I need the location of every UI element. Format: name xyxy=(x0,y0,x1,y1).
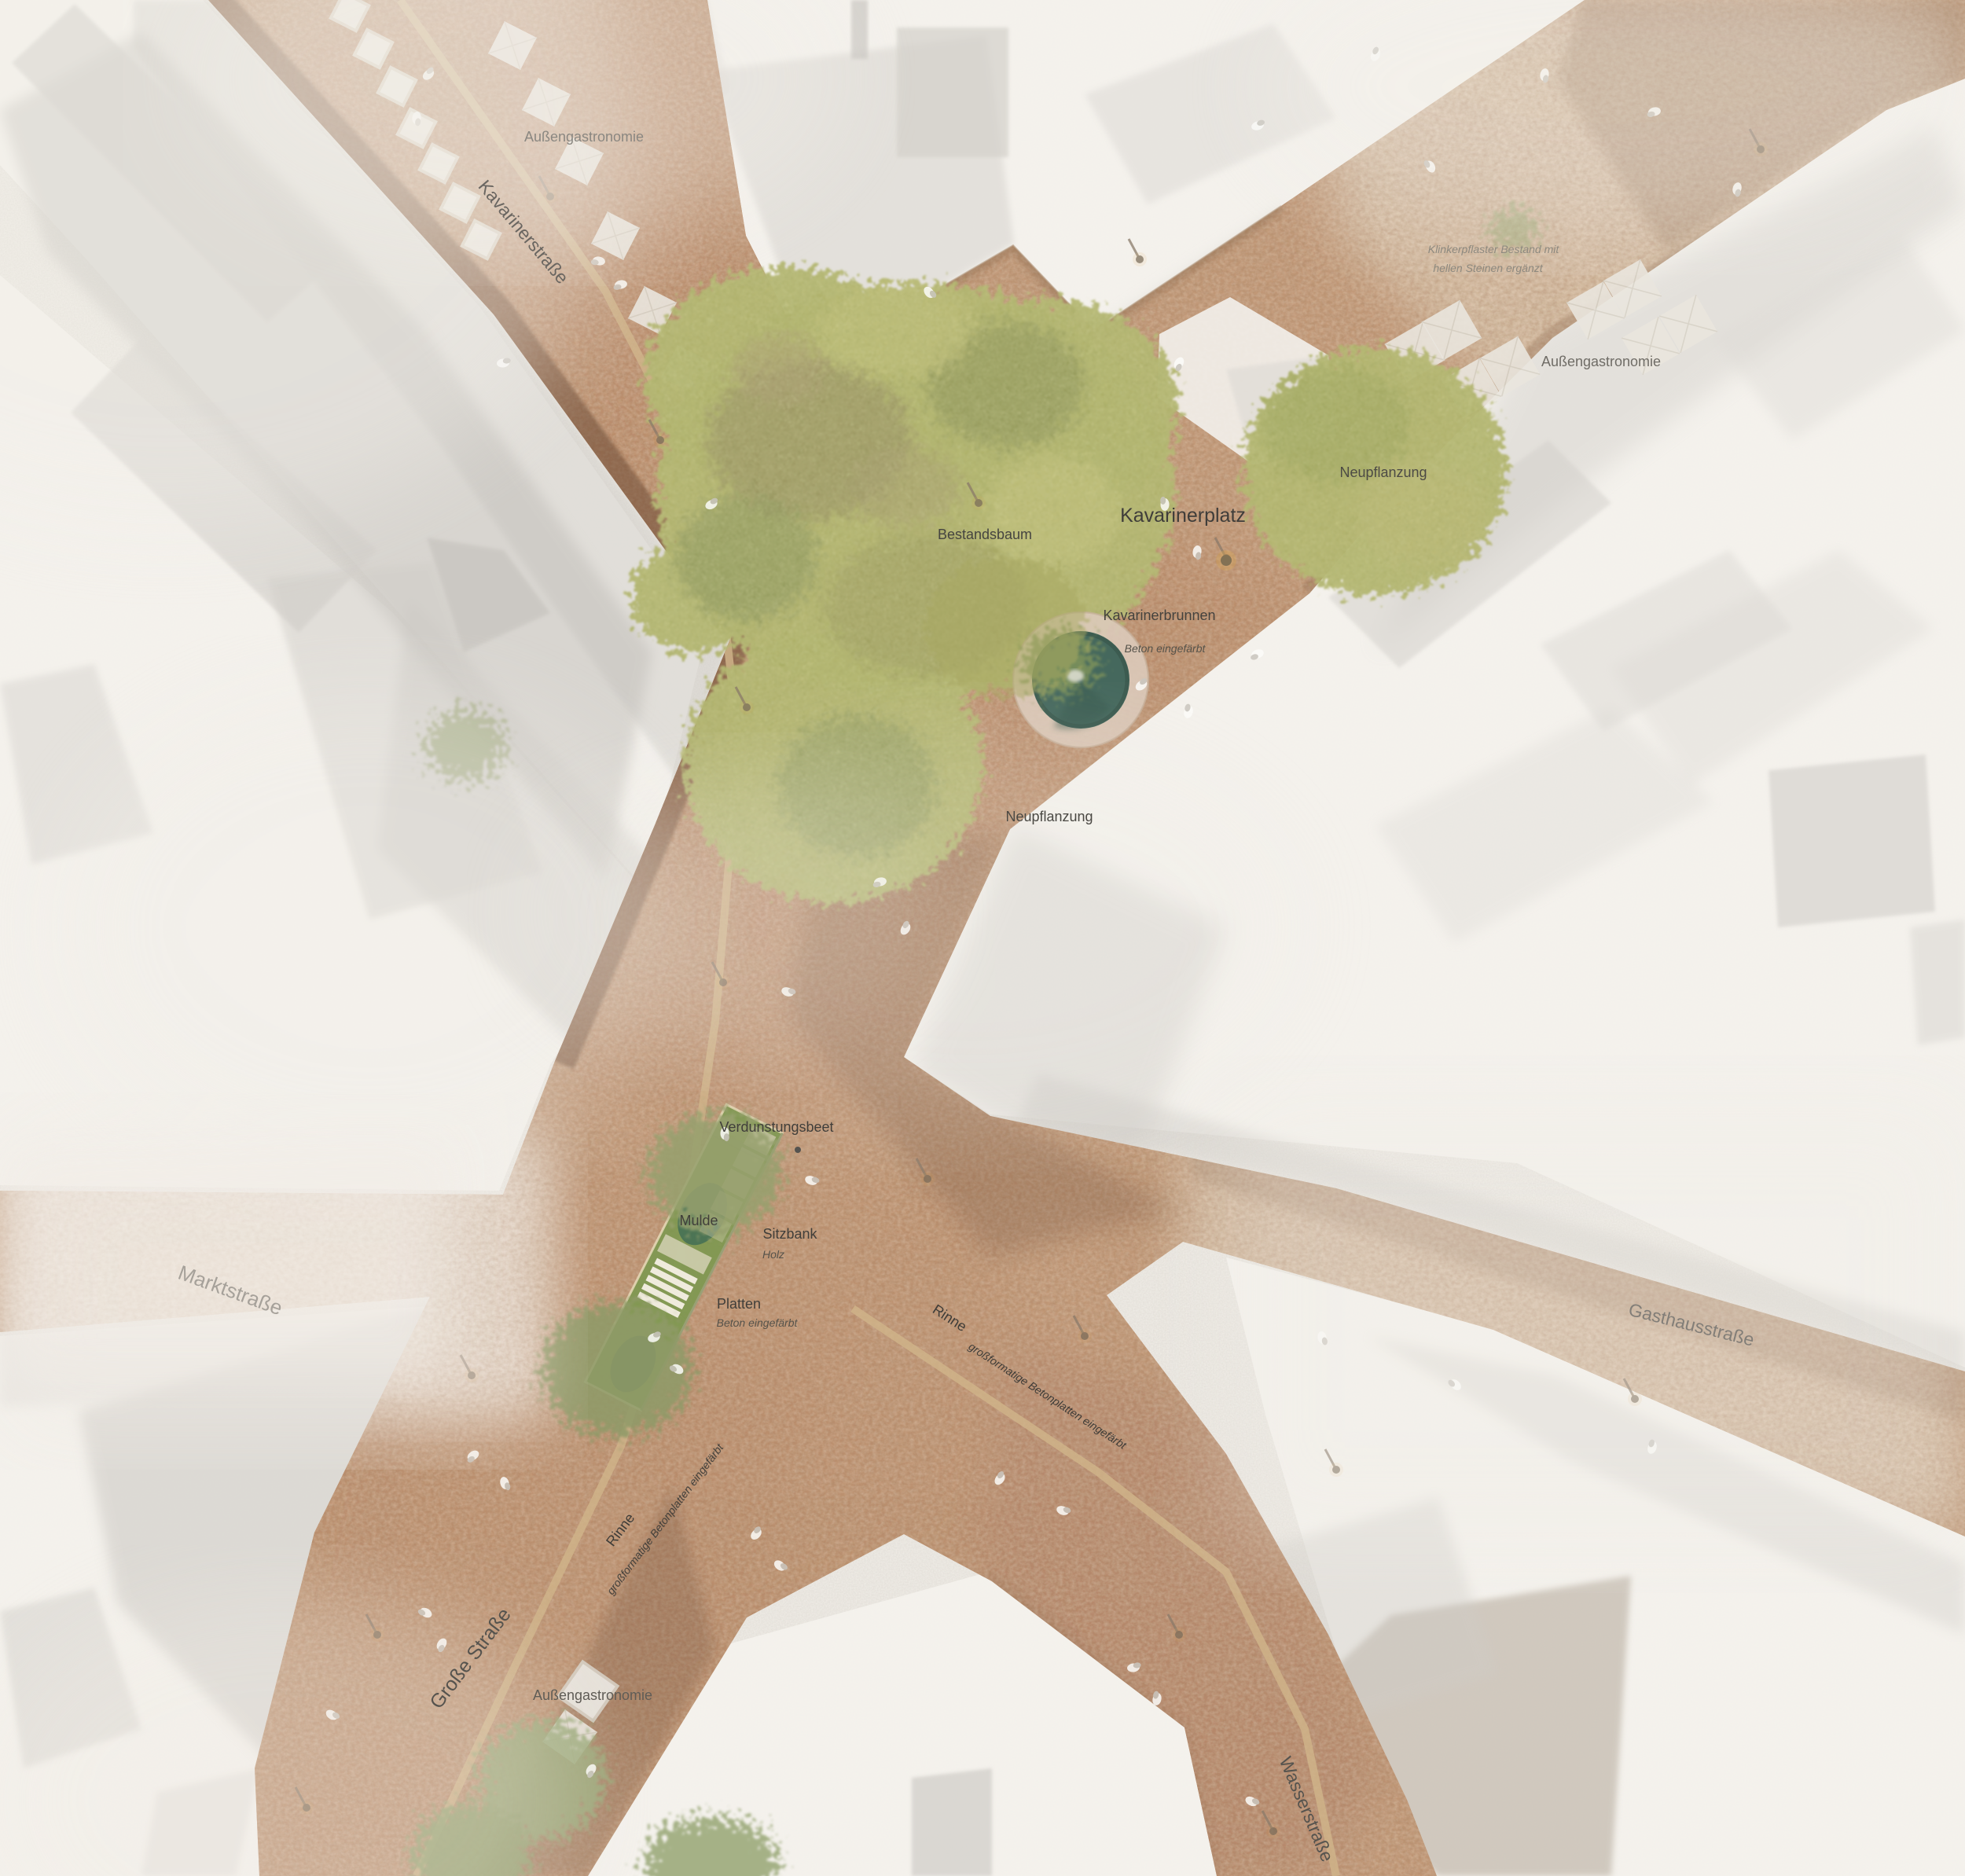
svg-text:Bestandsbaum: Bestandsbaum xyxy=(938,527,1032,542)
svg-text:Sitzbank: Sitzbank xyxy=(762,1226,817,1242)
svg-text:Beton eingefärbt: Beton eingefärbt xyxy=(1125,642,1207,655)
svg-text:Platten: Platten xyxy=(717,1296,761,1312)
svg-text:Holz: Holz xyxy=(762,1248,784,1261)
svg-text:Mulde: Mulde xyxy=(679,1213,718,1228)
svg-text:Neupflanzung: Neupflanzung xyxy=(1005,809,1093,824)
svg-text:Außengastronomie: Außengastronomie xyxy=(533,1687,652,1703)
svg-text:Klinkerpflaster Bestand mit: Klinkerpflaster Bestand mit xyxy=(1428,243,1560,255)
svg-text:Außengastronomie: Außengastronomie xyxy=(524,129,644,145)
svg-text:Neupflanzung: Neupflanzung xyxy=(1339,464,1427,480)
svg-text:Kavarinerplatz: Kavarinerplatz xyxy=(1120,505,1246,527)
svg-text:Kavarinerbrunnen: Kavarinerbrunnen xyxy=(1103,608,1215,623)
svg-text:Verdunstungsbeet: Verdunstungsbeet xyxy=(719,1119,833,1135)
svg-text:Beton eingefärbt: Beton eingefärbt xyxy=(717,1316,799,1329)
svg-text:hellen Steinen ergänzt: hellen Steinen ergänzt xyxy=(1433,262,1543,274)
svg-text:Außengastronomie: Außengastronomie xyxy=(1541,354,1661,369)
